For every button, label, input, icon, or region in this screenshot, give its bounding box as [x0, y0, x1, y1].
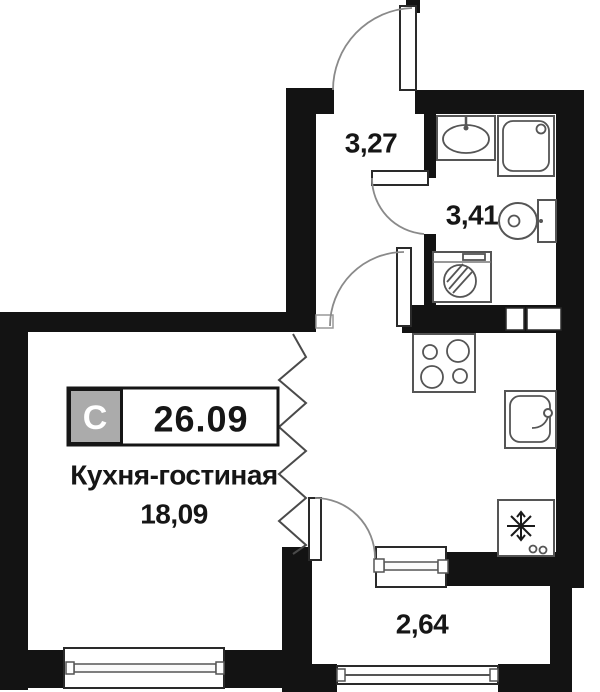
balcony-door-leaf	[309, 498, 321, 560]
ventilation-shaft	[506, 308, 561, 330]
interior-door-arc	[330, 252, 404, 326]
balcony-glazing-window	[337, 666, 498, 684]
toilet-icon	[499, 200, 556, 242]
balcony-door	[309, 498, 375, 560]
unit-type-label: С	[83, 399, 108, 437]
hallway-area: 3,27	[345, 128, 398, 159]
bathroom-sink-icon	[437, 116, 495, 160]
unit-badge: С 26.09	[68, 388, 278, 445]
kitchen-living-area: 18,09	[140, 499, 208, 530]
balcony-door-arc	[315, 498, 375, 558]
entrance-door-leaf	[400, 6, 416, 90]
refrigerator-icon	[498, 500, 554, 556]
balcony-divider-window	[374, 547, 448, 587]
living-room-window	[64, 648, 224, 688]
entrance-door	[333, 0, 420, 90]
kitchen-living-name: Кухня-гостиная	[70, 460, 278, 491]
kitchen-sink-icon	[505, 391, 556, 448]
bathroom-door	[372, 171, 428, 234]
zone-boundary-zigzag	[279, 334, 306, 554]
interior-door-leaf	[397, 248, 411, 326]
shower-icon	[498, 116, 554, 176]
bathroom-door-arc	[372, 178, 424, 234]
floor-plan: С 26.09 Кухня-гостиная 18,09 3,27 3,41 2…	[0, 0, 600, 692]
bathroom-door-leaf	[372, 171, 428, 185]
unit-total-area: 26.09	[153, 399, 248, 440]
bathroom-area: 3,41	[446, 200, 499, 231]
hallway-living-door	[330, 248, 411, 326]
snowflake-icon	[507, 512, 535, 540]
washing-machine-icon	[433, 252, 491, 302]
balcony-area: 2,64	[396, 609, 449, 640]
cooktop-icon	[413, 334, 475, 392]
